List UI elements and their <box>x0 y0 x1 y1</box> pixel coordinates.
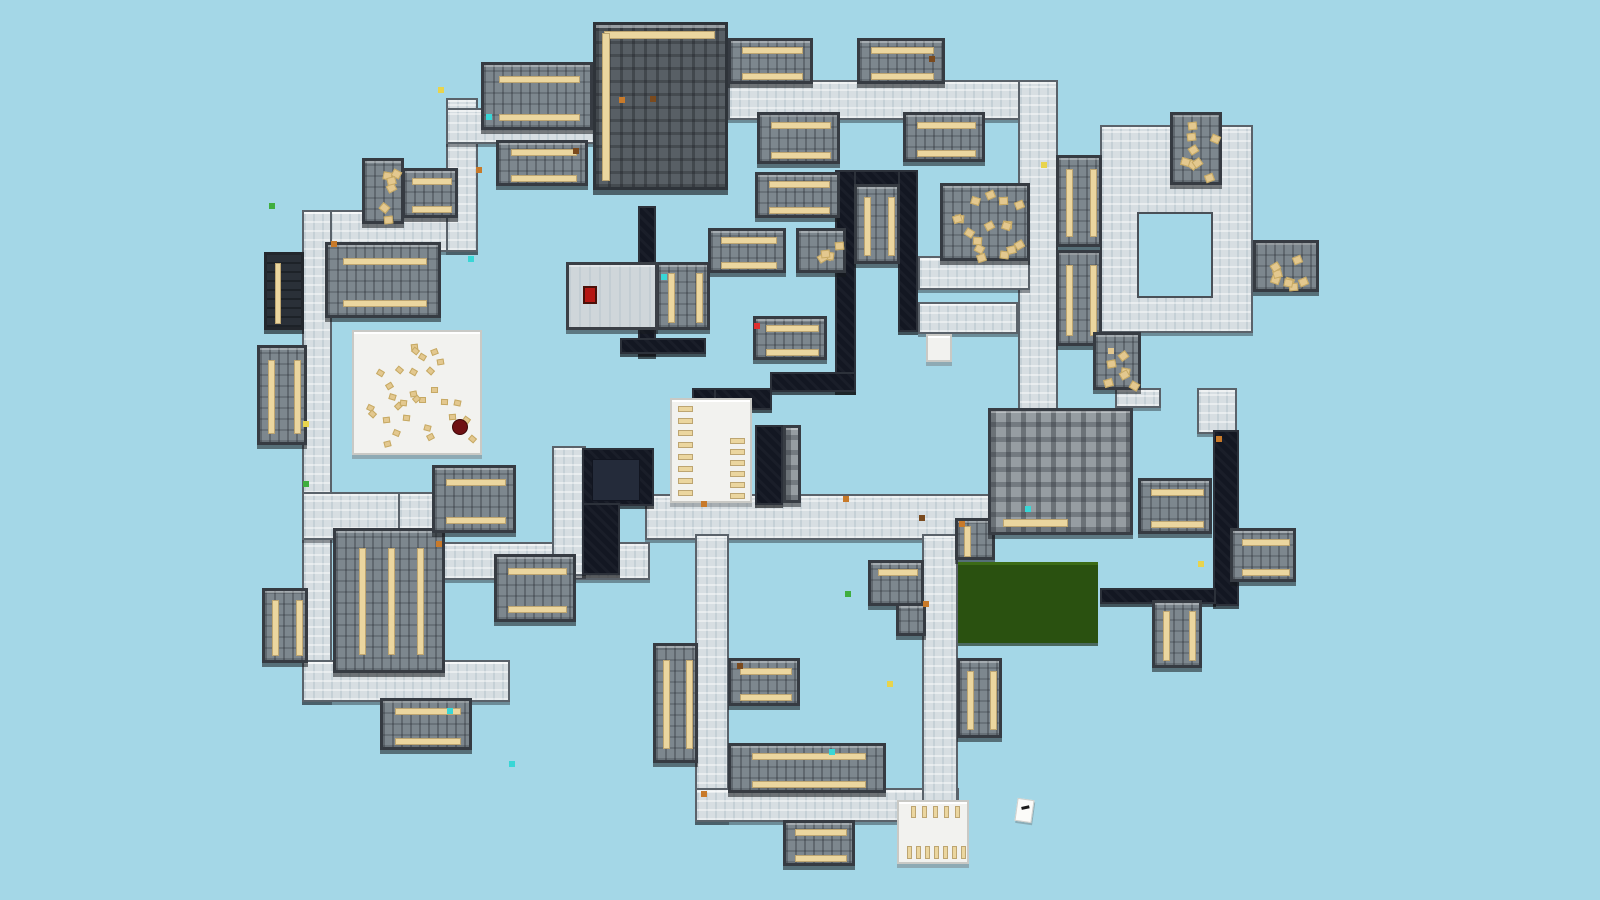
activity-room <box>1253 240 1319 292</box>
table <box>508 568 567 575</box>
activity-room <box>796 228 846 273</box>
classroom <box>957 658 1002 738</box>
classroom <box>854 184 900 264</box>
table <box>678 430 693 436</box>
map-item-speck <box>929 56 935 62</box>
table <box>925 846 930 859</box>
table <box>766 325 819 332</box>
table <box>871 47 934 54</box>
map-item-speck <box>468 256 474 262</box>
table <box>678 442 693 448</box>
classroom <box>496 140 588 186</box>
table <box>412 206 452 213</box>
desk-dot <box>1298 276 1309 287</box>
table <box>499 114 580 121</box>
table <box>1066 169 1073 237</box>
desk-dot <box>384 216 394 225</box>
activity-room <box>362 158 404 224</box>
desk-dot <box>1118 350 1130 362</box>
desk-dot <box>378 202 390 214</box>
table <box>678 418 693 424</box>
map-item-speck <box>1216 436 1222 442</box>
desk-dot <box>973 236 983 245</box>
map-item-speck <box>737 663 743 669</box>
table <box>1151 489 1204 496</box>
map-item-speck <box>1041 162 1047 168</box>
classroom <box>481 62 593 130</box>
table <box>917 122 976 129</box>
map-item-speck <box>331 241 337 247</box>
classroom <box>380 698 472 750</box>
table <box>911 806 916 818</box>
table <box>678 466 693 472</box>
table <box>272 600 279 656</box>
paper-icon <box>1014 798 1034 823</box>
gym-chair-dot <box>383 416 391 423</box>
classroom <box>903 112 985 162</box>
map-item-speck <box>303 481 309 487</box>
table <box>388 548 395 655</box>
desk-dot <box>1283 278 1293 288</box>
gym-chair-dot <box>436 359 444 366</box>
classroom <box>753 316 827 360</box>
table <box>771 152 831 159</box>
table <box>1189 611 1196 661</box>
library <box>593 22 728 190</box>
table <box>769 181 830 188</box>
cafeteria <box>670 398 752 503</box>
desk-dot <box>1204 172 1215 183</box>
desk-dot <box>984 220 996 231</box>
table <box>795 829 847 836</box>
table <box>508 606 567 613</box>
table <box>730 460 745 466</box>
table <box>417 548 424 655</box>
table <box>511 175 577 182</box>
hallway <box>918 256 1030 290</box>
map-item-speck <box>843 496 849 502</box>
table <box>1066 265 1073 336</box>
table <box>795 855 847 862</box>
desk-dot <box>1188 121 1198 130</box>
map-item-speck <box>438 87 444 93</box>
gym-chair-dot <box>430 348 439 356</box>
table <box>934 846 939 859</box>
game-map-canvas <box>0 0 1600 900</box>
table <box>740 668 792 675</box>
classroom <box>257 345 307 445</box>
table <box>268 360 275 434</box>
desk-dot <box>1291 255 1302 266</box>
classroom <box>783 820 855 866</box>
classroom <box>432 465 516 533</box>
gym-chair-dot <box>441 399 448 405</box>
dark-room <box>898 170 918 332</box>
table <box>888 197 895 256</box>
table <box>917 150 976 157</box>
table <box>696 273 703 323</box>
table <box>943 846 948 859</box>
desk-dot <box>821 249 831 258</box>
table <box>602 33 610 181</box>
table <box>864 197 871 256</box>
map-item-speck <box>661 274 667 280</box>
podium <box>583 286 597 304</box>
table <box>740 694 792 701</box>
white-room <box>926 334 952 362</box>
desk-dot <box>1106 359 1116 368</box>
table <box>878 569 918 576</box>
gym-chair-dot <box>431 387 438 393</box>
grid-room <box>783 425 801 503</box>
desk-dot <box>970 196 981 206</box>
table <box>922 806 927 818</box>
classroom <box>1230 528 1296 582</box>
table <box>944 806 949 818</box>
dark-room-inner <box>592 459 640 501</box>
map-item-speck <box>959 521 965 527</box>
table <box>663 660 670 749</box>
office-room <box>566 262 658 330</box>
map-item-speck <box>573 148 579 154</box>
map-item-speck <box>476 167 482 173</box>
desk-dot <box>1186 133 1196 142</box>
classroom <box>728 38 813 84</box>
table <box>1163 611 1170 661</box>
gym-chair-dot <box>426 367 435 376</box>
table <box>395 738 461 745</box>
classroom <box>868 560 924 606</box>
table <box>1151 521 1204 528</box>
map-item-speck <box>701 501 707 507</box>
desk-dot <box>985 190 996 201</box>
table <box>412 178 452 185</box>
classroom <box>494 554 576 622</box>
map-item-speck <box>269 203 275 209</box>
table <box>730 438 745 444</box>
desk-dot <box>1210 133 1221 144</box>
table <box>511 149 577 156</box>
dark-room <box>755 425 783 505</box>
desk-dot <box>1188 144 1200 156</box>
table <box>296 600 303 656</box>
table <box>916 846 921 859</box>
gym-chair-dot <box>418 353 427 362</box>
restroom <box>897 800 969 864</box>
desk-dot <box>1103 378 1114 388</box>
classroom <box>1056 155 1102 247</box>
grid-room <box>988 408 1133 535</box>
desk-dot <box>1128 380 1140 391</box>
classroom <box>755 172 840 218</box>
table <box>967 671 974 730</box>
gym-chair-dot <box>468 435 477 444</box>
table <box>730 471 745 477</box>
classroom <box>402 168 458 218</box>
map-item-speck <box>1108 348 1114 354</box>
table <box>446 517 506 524</box>
map-item-speck <box>1025 506 1031 512</box>
table <box>604 31 715 39</box>
activity-room <box>1170 112 1222 185</box>
map-item-speck <box>509 761 515 767</box>
map-item-speck <box>436 541 442 547</box>
gym-chair-dot <box>368 410 377 419</box>
map-item-speck <box>701 791 707 797</box>
table <box>721 237 777 244</box>
desk-dot <box>1014 199 1025 210</box>
desk-dot <box>1001 221 1012 231</box>
classroom <box>262 588 308 663</box>
paper-mark <box>1021 805 1029 810</box>
table <box>1003 519 1068 527</box>
table <box>294 360 301 434</box>
courtyard <box>1137 212 1213 298</box>
dark-classroom <box>264 252 304 330</box>
table <box>721 262 777 269</box>
table <box>752 753 866 760</box>
map-item-speck <box>1198 561 1204 567</box>
table <box>359 548 366 655</box>
table <box>769 207 830 214</box>
table <box>742 73 803 80</box>
gym-ball <box>452 419 468 435</box>
table <box>752 781 866 788</box>
gym-chair-dot <box>385 382 394 391</box>
map-item-speck <box>887 681 893 687</box>
table <box>871 73 934 80</box>
map-item-speck <box>845 591 851 597</box>
desk-dot <box>834 241 844 250</box>
sports-field <box>958 562 1098 643</box>
table <box>678 490 693 496</box>
hallway <box>918 302 1018 334</box>
table <box>678 478 693 484</box>
table <box>1090 265 1097 336</box>
hallway <box>695 534 729 822</box>
dark-room <box>620 338 706 354</box>
table <box>499 76 580 83</box>
hallway <box>922 534 958 822</box>
gym-chair-dot <box>403 415 411 422</box>
map-item-speck <box>486 114 492 120</box>
gym-chair-dot <box>454 399 462 406</box>
map-item-speck <box>829 749 835 755</box>
classroom <box>728 743 886 793</box>
dark-room <box>770 372 856 392</box>
hallway <box>1115 388 1161 408</box>
gym <box>352 330 482 455</box>
map-item-speck <box>923 601 929 607</box>
table <box>1090 169 1097 237</box>
table <box>730 449 745 455</box>
gym-chair-dot <box>423 424 431 432</box>
hallway <box>1197 388 1237 434</box>
table <box>771 122 831 129</box>
gym-chair-dot <box>376 369 385 378</box>
table <box>1242 539 1290 546</box>
classroom <box>653 643 698 763</box>
activity-room <box>1093 332 1141 390</box>
classroom <box>1138 478 1212 534</box>
classroom <box>757 112 840 164</box>
map-item-speck <box>619 97 625 103</box>
table <box>678 406 693 412</box>
desk-dot <box>1180 157 1191 167</box>
classroom <box>656 262 710 330</box>
map-item-speck <box>447 708 453 714</box>
gym-chair-dot <box>395 366 404 375</box>
table <box>964 526 971 557</box>
table <box>275 263 281 324</box>
table <box>686 660 693 749</box>
classroom <box>708 228 786 273</box>
desk-dot <box>386 176 397 186</box>
map-item-speck <box>650 96 656 102</box>
map-item-speck <box>303 421 309 427</box>
dark-room <box>582 503 620 575</box>
table <box>343 258 427 265</box>
classroom <box>1152 600 1202 668</box>
table <box>446 479 506 486</box>
table <box>668 273 675 323</box>
gym-chair-dot <box>389 393 397 401</box>
map-item-speck <box>754 323 760 329</box>
table <box>742 47 803 54</box>
classroom <box>896 603 926 636</box>
table <box>933 806 938 818</box>
table <box>730 493 745 499</box>
table <box>343 300 427 307</box>
table <box>678 454 693 460</box>
table <box>1242 569 1290 576</box>
table <box>952 846 957 859</box>
gym-chair-dot <box>400 400 408 407</box>
activity-room <box>940 183 1030 261</box>
table <box>955 806 960 818</box>
gym-chair-dot <box>426 433 435 442</box>
table <box>961 846 966 859</box>
classroom <box>333 528 445 673</box>
map-item-speck <box>919 515 925 521</box>
table <box>766 349 819 356</box>
table <box>730 482 745 488</box>
table <box>990 671 997 730</box>
classroom <box>325 242 441 318</box>
gym-chair-dot <box>449 413 456 419</box>
desk-dot <box>999 197 1008 205</box>
gym-chair-dot <box>392 429 401 437</box>
gym-chair-dot <box>383 440 391 448</box>
table <box>907 846 912 859</box>
gym-chair-dot <box>409 367 418 376</box>
